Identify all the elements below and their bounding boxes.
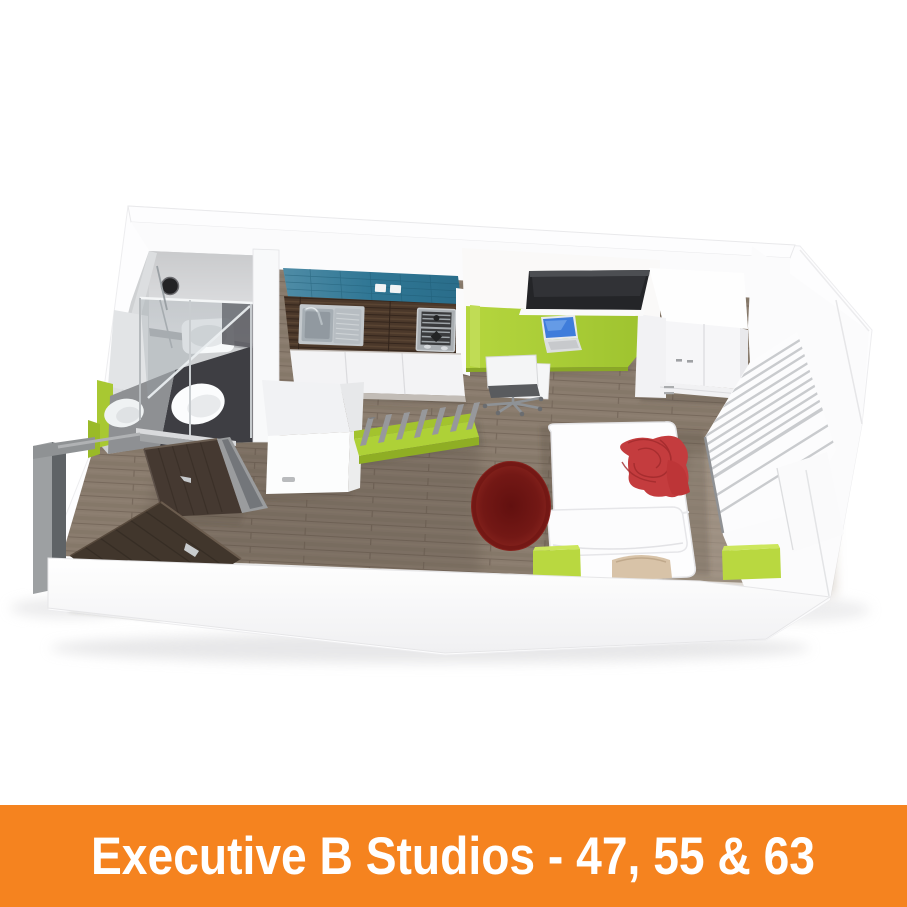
svg-text:Executive B Studios - 47, 55 &: Executive B Studios - 47, 55 & 63 (91, 827, 815, 886)
